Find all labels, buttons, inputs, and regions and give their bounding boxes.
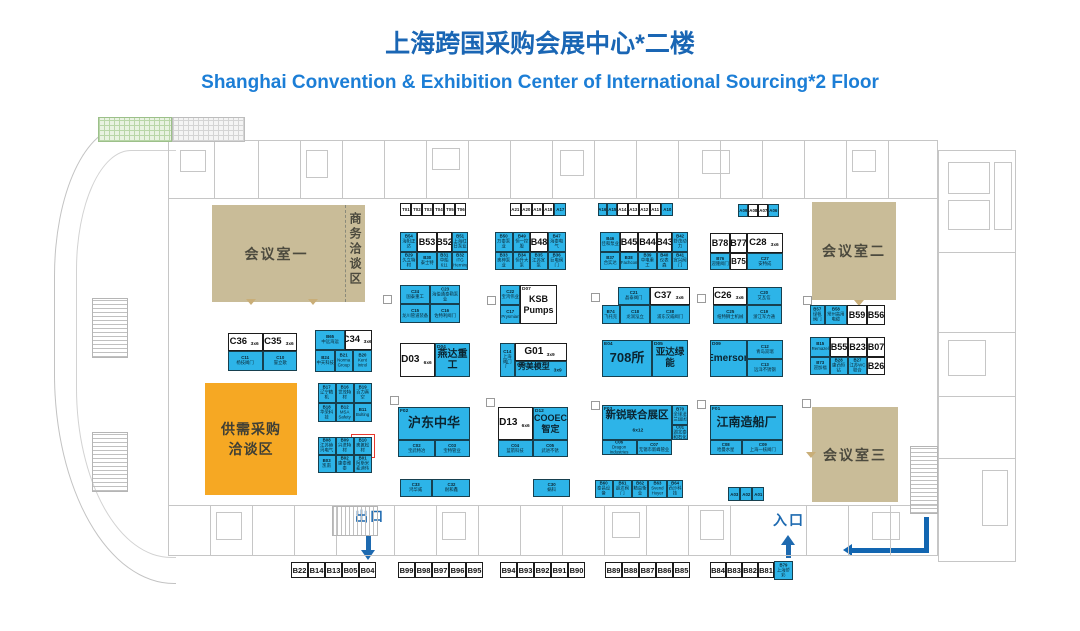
booth-A15: A15 <box>607 203 617 216</box>
booth-B26: B26 <box>867 357 885 375</box>
booth-C13: C13远洋不锈钢 <box>747 359 783 377</box>
booth-B35: B35江苏宜泵 <box>530 252 548 270</box>
column-marker <box>486 398 495 407</box>
structure-outline <box>938 458 1016 459</box>
booth-B61: B61超达阀门 <box>613 480 632 498</box>
structure-outline <box>168 198 938 199</box>
structure-outline <box>612 512 640 538</box>
column-marker <box>591 401 600 410</box>
booth-A03: A03 <box>728 487 740 501</box>
booth-B70: B70全球法兰组团 <box>672 405 688 425</box>
booth-C17: C17Prysmian <box>500 305 520 324</box>
structure-outline <box>252 506 253 555</box>
booth-B90: B90 <box>568 562 585 578</box>
booth-A16: A16 <box>598 203 607 216</box>
booth-B86: B86 <box>656 562 673 578</box>
booth-B93: B93 <box>517 562 534 578</box>
structure-outline <box>982 470 1008 526</box>
column-marker <box>697 294 706 303</box>
booth-B08: B08江苏赫玛电气 <box>318 437 336 455</box>
booth-C25: C25纽特狮士机械 <box>713 305 747 324</box>
booth-F01: F01江南造船厂 <box>710 405 783 440</box>
booth-B87: B87 <box>639 562 656 578</box>
booth-B21: B21Norma Group <box>335 350 353 372</box>
booth-B15: B15Remazel <box>810 337 830 357</box>
booth-B10: B10奥氮松材 <box>354 437 372 455</box>
booth-B14: B14 <box>308 562 325 578</box>
structure-outline <box>180 150 206 172</box>
booth-C36: C363x6 <box>228 333 263 351</box>
booth-B13: B13 <box>325 562 342 578</box>
booth-T04: T04 <box>433 203 444 216</box>
booth-C16: C16佐特利阀门 <box>430 304 460 323</box>
booth-B56: B56 <box>867 305 885 325</box>
booth-B27: B27江苏WC联合 <box>848 357 867 375</box>
structure-outline <box>172 117 245 142</box>
booth-B20: B20Kent Introl <box>353 350 372 372</box>
booth-B94: B94 <box>500 562 517 578</box>
booth-C15: C15龙川管道装备 <box>400 304 430 323</box>
booth-B37: B37合实达 <box>600 252 620 270</box>
booth-B19: B19百力真空 <box>354 383 372 403</box>
structure-outline <box>872 512 900 540</box>
booth-B82: B82 <box>742 562 758 578</box>
booth-B59: B59 <box>847 305 867 325</box>
booth-A12: A12 <box>639 203 650 216</box>
structure-outline <box>604 506 605 555</box>
booth-C21: C21晶泰阀门 <box>618 287 650 305</box>
booth-C09: C09上海一核阀门 <box>742 440 783 455</box>
structure-outline <box>216 512 242 540</box>
structure-outline <box>562 506 563 555</box>
booth-B52: B52 <box>437 232 452 252</box>
booth-B63: B63Svend Hoyer <box>648 480 667 498</box>
structure-outline <box>258 141 259 198</box>
column-marker <box>390 396 399 405</box>
booth-B48: B48 <box>530 232 548 252</box>
booth-B65: B65中远海运 <box>315 330 345 350</box>
booth-B02: B02康泰雅泰 <box>336 455 354 473</box>
booth-B32: B32ITG Herning <box>452 252 468 270</box>
booth-D09: D09Emerson <box>710 340 747 377</box>
booth-B91: B91 <box>551 562 568 578</box>
booth-B88: B88 <box>622 562 639 578</box>
booth-E04: E04708所 <box>602 340 652 377</box>
column-marker <box>803 296 812 305</box>
booth-B99: B99 <box>398 562 415 578</box>
booth-A20: A20 <box>521 203 532 216</box>
booth-C35: C353x6 <box>263 333 297 351</box>
booth-B11: B11Bolting <box>354 403 372 422</box>
structure-outline <box>938 332 1016 333</box>
structure-outline <box>168 505 938 506</box>
structure-outline <box>520 506 521 555</box>
booth-C37: C373x6 <box>650 287 690 305</box>
booth-B18: B18华荣科技 <box>318 403 336 422</box>
booth-B76: B76迎隆阀门 <box>710 253 730 270</box>
booth-A09: A09 <box>738 204 748 217</box>
booth-A08: A08 <box>748 204 758 217</box>
booth-B31: B31中船611 <box>437 252 452 270</box>
stairs-hatch <box>92 298 128 358</box>
booth-D07: D07KSB Pumps <box>520 285 557 324</box>
booth-B04: B04 <box>359 562 376 578</box>
structure-outline <box>646 506 647 555</box>
booth-B28: B28康西恒钻 <box>830 357 848 375</box>
structure-outline <box>804 141 805 198</box>
booth-B74: B74飞托克 <box>602 305 620 324</box>
booth-A06: A06 <box>768 204 779 217</box>
booth-C38: C38浦东汉威阀门 <box>650 305 690 324</box>
booth-A14: A14 <box>617 203 628 216</box>
structure-outline <box>948 340 986 376</box>
booth-A21: A21 <box>510 203 521 216</box>
stairs-hatch <box>332 506 378 536</box>
booth-T01: T01 <box>400 203 411 216</box>
booth-B22: B22 <box>291 562 308 578</box>
booth-B46: B46佳和泵业 <box>600 232 620 252</box>
booth-A10: A10 <box>661 203 673 216</box>
booth-B54: B54海阳正达 <box>400 232 417 252</box>
column-marker <box>383 295 392 304</box>
structure-outline <box>342 141 343 198</box>
booth-C14: C14上海阀门厂 <box>500 343 515 377</box>
booth-B64: B64西沙科技 <box>667 480 683 498</box>
booth-B50: B50万泰泵业 <box>495 232 513 252</box>
booth-C20: C20艾瓦信 <box>747 287 782 305</box>
structure-outline <box>636 141 637 198</box>
booth-C28: C283x6 <box>747 233 783 253</box>
column-marker <box>697 400 706 409</box>
booth-B96: B96 <box>449 562 466 578</box>
booth-B34: B34恒升大泵 <box>513 252 530 270</box>
structure-outline <box>552 141 553 198</box>
structure-outline <box>510 141 511 198</box>
booth-D03: D036x6 <box>400 343 435 377</box>
structure-outline <box>432 148 460 170</box>
booth-D04: D04燕达重工 <box>435 343 470 377</box>
structure-outline <box>436 506 437 555</box>
booth-C18: C18龙润泓立 <box>620 305 650 324</box>
structure-outline <box>846 141 847 198</box>
booth-B05: B05 <box>342 562 359 578</box>
booth-C22: C22宝鸿伟业 <box>500 285 520 305</box>
booth-T02: T02 <box>411 203 422 216</box>
booth-G01: G013x9 <box>515 343 567 361</box>
structure-outline <box>688 506 689 555</box>
booth-C04: C04蓝箭科技 <box>498 440 533 457</box>
booth-B92: B92 <box>534 562 551 578</box>
booth-B98: B98 <box>415 562 432 578</box>
door-mark <box>308 299 318 305</box>
booth-B09: B09兴进特材 <box>336 437 354 455</box>
booth-B23: B23 <box>848 337 867 357</box>
booth-C11: C11杨技阀门 <box>228 351 263 371</box>
booth-B75: B75 <box>730 253 747 270</box>
booth-B16: B16世茂特材 <box>336 383 354 403</box>
booth-B36: B36巨电阀门 <box>548 252 566 270</box>
booth-B17: B17辽宁精机 <box>318 383 336 403</box>
booth-B49: B49恒一控股 <box>513 232 530 252</box>
booth-B78: B78 <box>710 233 730 253</box>
structure-outline <box>426 141 427 198</box>
booth-B39: B39中电重工 <box>638 252 657 270</box>
structure-outline <box>948 200 990 230</box>
booth-B85: B85 <box>673 562 690 578</box>
booth-C34: C343x6 <box>345 330 372 350</box>
booth-F02: F02沪东中华 <box>398 407 470 440</box>
structure-outline <box>478 506 479 555</box>
booth-C12: C12青岛双瑞 <box>747 340 783 359</box>
booth-A18: A18 <box>543 203 554 216</box>
booth-C32: C32耐和鑫 <box>432 479 470 497</box>
booth-B95: B95 <box>466 562 483 578</box>
booth-B24: B24中天科技 <box>315 350 335 372</box>
structure-outline <box>300 141 301 198</box>
column-marker <box>487 296 496 305</box>
booth-A01: A01 <box>752 487 764 501</box>
structure-outline <box>294 506 295 555</box>
structure-outline <box>394 506 395 555</box>
structure-outline <box>384 141 385 198</box>
structure-outline <box>560 150 584 176</box>
booth-A11: A11 <box>650 203 661 216</box>
structure-outline <box>468 141 469 198</box>
booth-C06: C06Dragon Industries <box>602 440 637 455</box>
booth-T05: T05 <box>444 203 455 216</box>
booth-B62: B62精益衡业 <box>632 480 648 498</box>
structure-outline <box>888 141 889 198</box>
booth-B30: B30泰士特 <box>417 252 437 270</box>
booth-C08: C08哈曼水星 <box>710 440 742 455</box>
booth-C33: C33鸿华威 <box>400 479 432 497</box>
structure-outline <box>938 396 1016 397</box>
structure-outline <box>852 150 876 172</box>
structure-outline <box>994 162 1012 230</box>
booth-T06: T06 <box>455 203 466 216</box>
booth-C05: C05武进不锈 <box>533 440 568 457</box>
booth-B01: B01阿斯米麦迪伟 <box>354 455 372 473</box>
structure-outline <box>98 117 172 142</box>
booth-C07: C07无锡市新峰管业 <box>637 440 672 455</box>
booth-B41: B41宜兴阀门 <box>672 252 688 270</box>
structure-outline <box>678 141 679 198</box>
booth-C23: C23海伯通泰勒泵业 <box>430 285 460 304</box>
stairs-hatch <box>92 432 128 492</box>
booth-B43: B43 <box>657 232 672 252</box>
booth-D13: D136x6 <box>498 407 533 440</box>
structure-outline <box>442 512 466 540</box>
booth-F03: F03新锐联合展区6x12 <box>602 405 672 440</box>
column-marker <box>591 293 600 302</box>
booth-B84: B84 <box>710 562 726 578</box>
structure-outline <box>702 150 730 174</box>
floor-plan: 会议室一 商务洽谈区 会议室二 会议室三 供需采购 洽谈区 出口 入口 <box>0 0 1080 631</box>
booth-B40: B40仪表森 <box>657 252 672 270</box>
booth-B12: B12MSA Safety <box>336 403 354 422</box>
structure-outline <box>214 141 215 198</box>
booth-B58: B58常州高用电缆 <box>825 305 847 325</box>
booth-B29: B29久立特材 <box>400 252 417 270</box>
booth-A07: A07 <box>758 204 768 217</box>
booth-B33: B33奥神泵业 <box>495 252 513 270</box>
booth-B03: B03凯南 <box>318 455 336 473</box>
booth-C19: C19浙江军力通 <box>747 305 782 324</box>
booth-B55: B55 <box>830 337 848 357</box>
structure-outline <box>938 252 1016 253</box>
booth-D05: D05亚达绿能 <box>652 340 688 377</box>
structure-outline <box>700 510 724 540</box>
booth-B07: B07 <box>867 337 885 357</box>
booth-B51: B51上海红日泵业 <box>452 232 468 252</box>
booth-A19: A19 <box>532 203 543 216</box>
booth-B44: B44 <box>638 232 657 252</box>
structure-outline <box>730 506 731 555</box>
booth-B77: B77 <box>730 233 747 253</box>
structure-outline <box>762 141 763 198</box>
door-mark <box>806 452 816 458</box>
booth-B47: B47海泰电气 <box>548 232 566 252</box>
booth-B57: B57绿帆阀门 <box>810 305 825 325</box>
booth-C24: C24国泰重工 <box>400 285 430 304</box>
booth-D12: D12COOEC 智定 <box>533 407 568 440</box>
booth-B60: B60泰昌设备 <box>595 480 613 498</box>
booth-C27: C27安特成 <box>747 253 783 270</box>
booth-C02: C02宝武特冶 <box>398 440 435 457</box>
booth-B38: B38Fachcom <box>620 252 638 270</box>
booth-B97: B97 <box>432 562 449 578</box>
booth-B53: B53 <box>417 232 437 252</box>
booth-A02: A02 <box>740 487 752 501</box>
stairs-hatch <box>910 446 938 514</box>
booth-B79: B79上海侨彩 <box>774 561 793 580</box>
structure-outline <box>594 141 595 198</box>
booth-B89: B89 <box>605 562 622 578</box>
booth-A17: A17 <box>554 203 566 216</box>
structure-outline <box>948 162 990 194</box>
structure-outline <box>806 506 807 555</box>
structure-outline <box>210 506 211 555</box>
booth-B83: B83 <box>726 562 742 578</box>
structure-outline <box>306 150 328 178</box>
booth-B45: B45 <box>620 232 638 252</box>
booth-G02: G02秀美模型3x9 <box>515 361 567 377</box>
booth-C01: C01湖北泰和石化 <box>672 425 688 440</box>
booth-C26: C263x6 <box>713 287 747 305</box>
booth-B42: B42舒茂动力 <box>672 232 688 252</box>
structure-outline <box>848 506 849 555</box>
booth-C03: C03宝特管业 <box>435 440 470 457</box>
column-marker <box>802 399 811 408</box>
door-mark <box>246 299 256 305</box>
booth-C30: C30蜗科 <box>533 479 570 497</box>
booth-T03: T03 <box>422 203 433 216</box>
booth-B73: B73迎加福 <box>810 357 830 375</box>
booth-B81: B81 <box>758 562 774 578</box>
booth-A13: A13 <box>628 203 639 216</box>
booth-C10: C10誉立歌 <box>263 351 297 371</box>
floorplan-page: 上海跨国采购会展中心*二楼 Shanghai Convention & Exhi… <box>0 0 1080 631</box>
